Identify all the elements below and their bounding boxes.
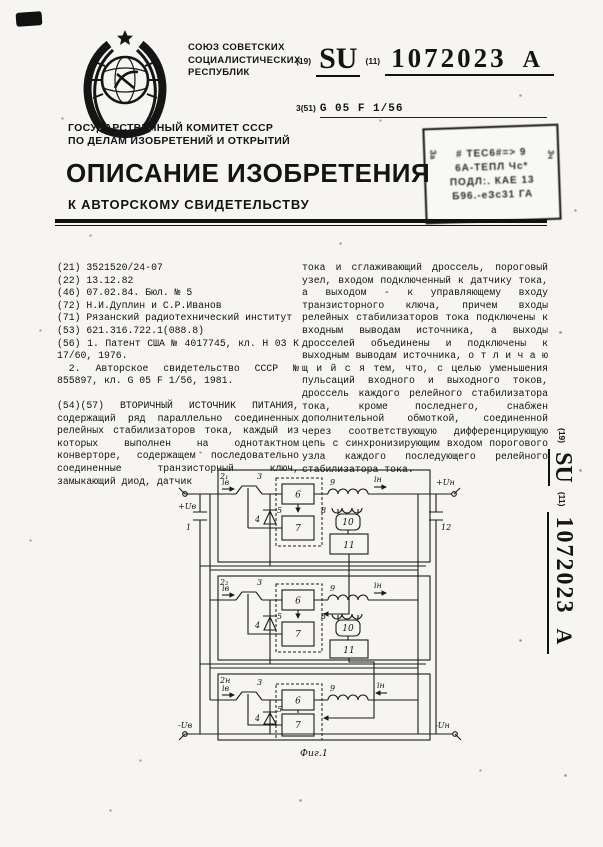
union-name: СОЮЗ СОВЕТСКИХ СОЦИАЛИСТИЧЕСКИХ РЕСПУБЛИ…	[188, 42, 301, 80]
cap-in-label: 1	[186, 523, 191, 532]
doc-number: 1072023	[552, 516, 576, 614]
cap-out-label: 12	[441, 523, 451, 532]
kind-code: A	[551, 628, 577, 644]
library-stamp: # ТЕС6#=> 9 6А-ТЕПЛ Чс* ПОДЛ:. КАЕ 13 Б9…	[422, 124, 561, 225]
choke-label: 9	[330, 584, 335, 593]
block7-label: 7	[295, 721, 301, 731]
ipc-class: G 05 F 1/56	[320, 103, 404, 115]
doc-type-title: ОПИСАНИЕ ИЗОБРЕТЕНИЯ	[66, 158, 430, 189]
scan-noise	[0, 0, 1, 1]
diode-label: 4	[254, 515, 260, 524]
code-11: (11)	[557, 492, 567, 507]
reference-1: (56) 1. Патент США № 4017745, кл. Н 03 К…	[57, 338, 299, 363]
doc-number-group: 1072023 A	[547, 512, 577, 654]
publication-number: (19) SU (11) 1072023 A	[296, 44, 554, 77]
ipc-underline: G 05 F 1/56	[320, 98, 547, 118]
figure-caption: Фиг.1	[300, 748, 328, 759]
country-code: SU	[316, 44, 360, 77]
u-out-minus-label: -Uн	[435, 721, 450, 730]
diode-label: 4	[254, 714, 260, 723]
choke-label: 9	[330, 684, 335, 693]
transistor-label: 3	[257, 472, 262, 481]
code-51: 3(51)	[296, 103, 316, 113]
current-out-label: iн	[377, 681, 385, 690]
stamp-line: # ТЕС6#=> 9	[425, 145, 557, 161]
block11-label: 11	[343, 646, 354, 656]
ipc-class-line: 3(51) G 05 F 1/56	[296, 98, 547, 118]
winding-label: 8	[321, 506, 326, 515]
transistor-label: 3	[257, 578, 262, 587]
patent-page: СОЮЗ СОВЕТСКИХ СОЦИАЛИСТИЧЕСКИХ РЕСПУБЛИ…	[0, 0, 603, 847]
block6-label: 6	[295, 697, 301, 707]
union-line: СОЮЗ СОВЕТСКИХ	[188, 42, 301, 55]
biblio-line: (53) 621.316.722.1(088.8)	[57, 325, 299, 338]
block7-label: 7	[295, 524, 301, 534]
block7-label: 7	[295, 630, 301, 640]
biblio-line: (21) 3521520/24-07	[57, 262, 299, 275]
doc-number: 1072023	[391, 45, 507, 72]
union-line: СОЦИАЛИСТИЧЕСКИХ	[188, 55, 301, 68]
bibliographic-column: (21) 3521520/24-07 (22) 13.12.82 (46) 07…	[57, 262, 299, 488]
current-in-label: iв	[222, 684, 230, 693]
committee-name: ГОСУДАРСТВЕННЫЙ КОМИТЕТ СССР ПО ДЕЛАМ ИЗ…	[68, 122, 290, 148]
block11-label: 11	[343, 541, 354, 551]
biblio-line: (71) Рязанский радиотехнический институт	[57, 312, 299, 325]
header-divider-thin	[55, 225, 547, 226]
code-11: (11)	[365, 56, 380, 66]
code-19: (19)	[296, 56, 311, 66]
control-box-label: 5	[277, 612, 282, 621]
stamp-line: ПОДЛ:. КАЕ 13	[426, 173, 558, 189]
winding-label: 8	[321, 612, 326, 621]
country-code: SU	[549, 449, 576, 486]
current-in-label: iв	[222, 584, 230, 593]
diff-block-label: 10	[342, 624, 354, 634]
doc-number-group: 1072023 A	[385, 45, 554, 76]
control-box-label: 5	[277, 506, 282, 515]
reference-2: 2. Авторское свидетельство СССР № 855897…	[57, 363, 299, 388]
biblio-line: (72) Н.И.Дуплин и С.Р.Иванов	[57, 300, 299, 313]
circuit-diagram: +Uв -Uв +Uн -Uн 1 12 2₁ iв 3 4 5 6 7 8 9…	[178, 462, 468, 762]
stamp-line: 6А-ТЕПЛ Чс*	[426, 159, 558, 175]
choke-label: 9	[330, 478, 335, 487]
biblio-line: (46) 07.02.84. Бюл. № 5	[57, 287, 299, 300]
diode-label: 4	[254, 621, 260, 630]
stamp-side-mark: 3ч	[546, 150, 555, 159]
code-19: (19)	[557, 428, 567, 443]
union-line: РЕСПУБЛИК	[188, 67, 301, 80]
sidebar-publication-number: (19) SU (11) 1072023 A	[547, 428, 577, 654]
block6-label: 6	[295, 491, 301, 501]
kind-code: A	[523, 48, 540, 72]
committee-line: ГОСУДАРСТВЕННЫЙ КОМИТЕТ СССР	[68, 122, 290, 135]
diff-block-label: 10	[342, 518, 354, 528]
stamp-line: Б96.-еЗс31 ГА	[427, 187, 559, 203]
control-box-label: 5	[277, 705, 282, 714]
committee-line: ПО ДЕЛАМ ИЗОБРЕТЕНИЙ И ОТКРЫТИЙ	[68, 135, 290, 148]
u-in-plus-label: +Uв	[178, 502, 196, 511]
scan-artifact	[16, 11, 43, 27]
transistor-label: 3	[257, 678, 262, 687]
biblio-line: (22) 13.12.82	[57, 275, 299, 288]
doc-type-subtitle: К АВТОРСКОМУ СВИДЕТЕЛЬСТВУ	[68, 197, 309, 212]
current-out-label: iн	[374, 581, 382, 590]
u-in-minus-label: -Uв	[178, 721, 192, 730]
header-divider	[55, 219, 547, 226]
current-in-label: iв	[222, 478, 230, 487]
block6-label: 6	[295, 597, 301, 607]
abstract-text-right: тока и сглаживающий дроссель, пороговый …	[302, 262, 548, 476]
u-out-plus-label: +Uн	[436, 478, 455, 487]
current-out-label: iн	[374, 475, 382, 484]
